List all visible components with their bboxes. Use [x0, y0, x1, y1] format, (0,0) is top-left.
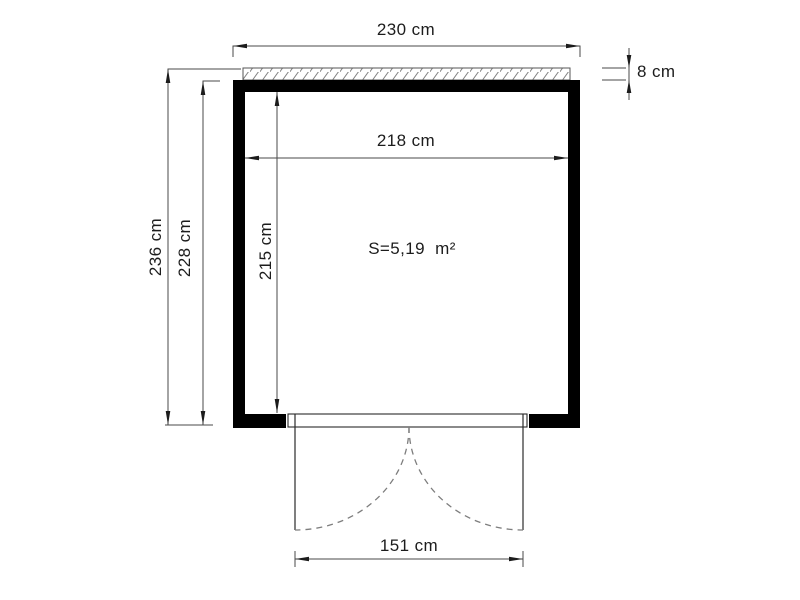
arrow-228-top: [201, 81, 206, 95]
area-label: S=5,19 m²: [332, 239, 492, 259]
arrow-218-left: [245, 156, 259, 161]
dim-label-wall-depth: 228 cm: [175, 188, 195, 308]
arrow-228-bottom: [201, 411, 206, 425]
dim-label-door-width: 151 cm: [349, 536, 469, 556]
dim-label-inner-depth: 215 cm: [256, 191, 276, 311]
dim-label-total-depth: 236 cm: [146, 187, 166, 307]
floor-plan-drawing: [0, 0, 800, 600]
arrow-236-top: [166, 69, 171, 83]
floor-plan-canvas: 230 cm 8 cm 218 cm 236 cm 228 cm 215 cm …: [0, 0, 800, 600]
roof-strip-hatched: [243, 68, 570, 80]
wall-bottom-left-stub: [233, 414, 286, 428]
arrow-215-top: [275, 92, 280, 106]
arrow-215-bottom: [275, 399, 280, 413]
door-swing-arc-right: [409, 427, 523, 530]
dim-label-inner-width: 218 cm: [346, 131, 466, 151]
double-door: [288, 414, 527, 530]
wall-bottom-right-stub: [529, 414, 580, 428]
arrow-230-left: [233, 44, 247, 49]
arrow-236-bottom: [166, 411, 171, 425]
arrow-230-right: [566, 44, 580, 49]
arrow-218-right: [554, 156, 568, 161]
arrow-151-left: [295, 557, 309, 562]
wall-top: [233, 80, 580, 92]
dim-label-outer-width: 230 cm: [346, 20, 466, 40]
door-swing-arc-left: [295, 427, 409, 530]
dim-line-wall-depth: [203, 81, 220, 425]
wall-left: [233, 80, 245, 428]
dim-label-roof-strip: 8 cm: [637, 62, 707, 82]
dim-line-outer-width: [233, 46, 580, 57]
arrow-8-top: [627, 55, 632, 68]
arrow-8-bottom: [627, 80, 632, 93]
arrow-151-right: [509, 557, 523, 562]
wall-right: [568, 80, 580, 428]
door-threshold: [288, 414, 527, 427]
